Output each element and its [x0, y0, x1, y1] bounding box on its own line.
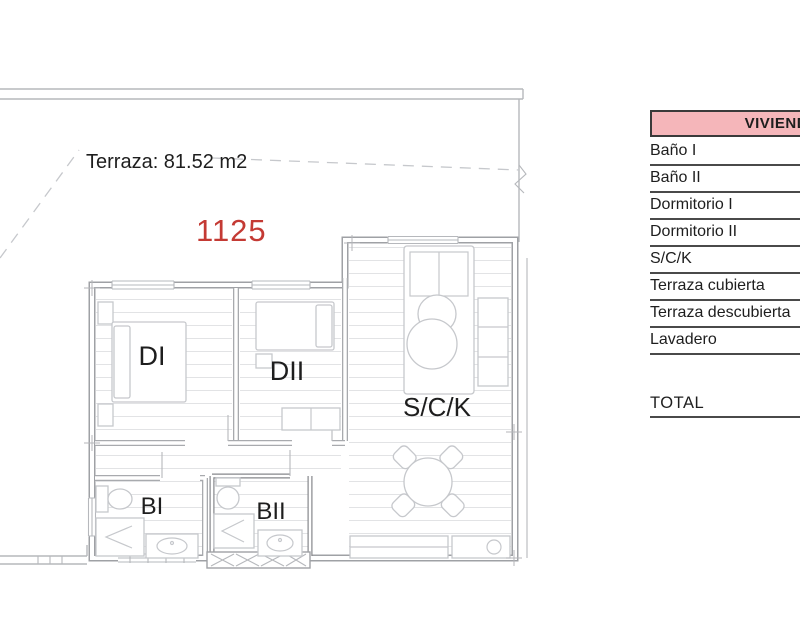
table-row-dormitorio1: Dormitorio I	[650, 193, 800, 220]
table-header-label: VIVIENDA	[745, 115, 800, 132]
room-label-dormitorio1: DI	[139, 341, 166, 371]
table-row-bano1: Baño I	[650, 139, 800, 166]
table-row-dormitorio2: Dormitorio II	[650, 220, 800, 247]
total-label: TOTAL	[650, 394, 704, 412]
terrace-area-label: Terraza: 81.52 m2	[86, 151, 247, 173]
table-row-terraza-cubierta: Terraza cubierta	[650, 274, 800, 301]
room-label-salon-cocina: S/C/K	[403, 392, 472, 422]
floor-plan-drawing: Terraza: 81.52 m2 1125 DI DII S/C/K BI B…	[0, 0, 560, 640]
table-row-bano2: Baño II	[650, 166, 800, 193]
table-row-terraza-descubierta: Terraza descubierta	[650, 301, 800, 328]
unit-number: 1125	[196, 213, 267, 248]
table-header: VIVIENDA	[650, 110, 800, 137]
room-label-bano1: BI	[141, 493, 164, 520]
floor-plan-page: Terraza: 81.52 m2 1125 DI DII S/C/K BI B…	[0, 0, 800, 640]
table-row-sck: S/C/K	[650, 247, 800, 274]
table-total-row: TOTAL	[650, 392, 800, 418]
neighbour-wall	[0, 545, 87, 564]
room-label-dormitorio2: DII	[270, 356, 305, 386]
summary-table: Baño I Baño II Dormitorio I Dormitorio I…	[650, 139, 800, 355]
table-row-lavadero: Lavadero	[650, 328, 800, 355]
room-label-bano2: BII	[256, 498, 285, 525]
